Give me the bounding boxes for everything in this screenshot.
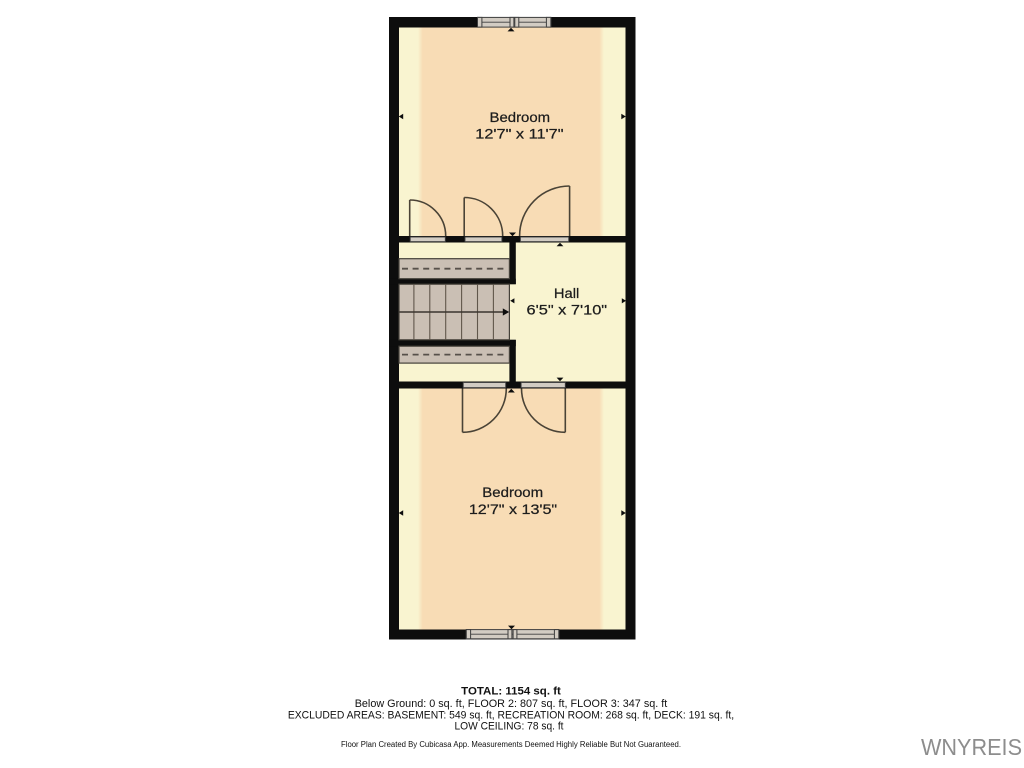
svg-text:6'5" x 7'10": 6'5" x 7'10" <box>527 303 608 319</box>
svg-text:TOTAL: 1154 sq. ft: TOTAL: 1154 sq. ft <box>461 685 561 697</box>
svg-text:Hall: Hall <box>554 286 579 302</box>
svg-text:LOW CEILING: 78 sq. ft: LOW CEILING: 78 sq. ft <box>455 720 565 732</box>
svg-text:WNYREIS: WNYREIS <box>921 734 1022 760</box>
svg-text:12'7" x 11'7": 12'7" x 11'7" <box>475 127 563 143</box>
svg-text:Floor Plan Created By Cubicasa: Floor Plan Created By Cubicasa App. Meas… <box>341 740 681 749</box>
svg-text:Bedroom: Bedroom <box>490 110 551 126</box>
svg-text:Bedroom: Bedroom <box>482 485 543 501</box>
svg-text:Below Ground: 0 sq. ft, FLOOR: Below Ground: 0 sq. ft, FLOOR 2: 807 sq.… <box>355 698 668 710</box>
svg-text:12'7" x 13'5": 12'7" x 13'5" <box>469 502 557 518</box>
